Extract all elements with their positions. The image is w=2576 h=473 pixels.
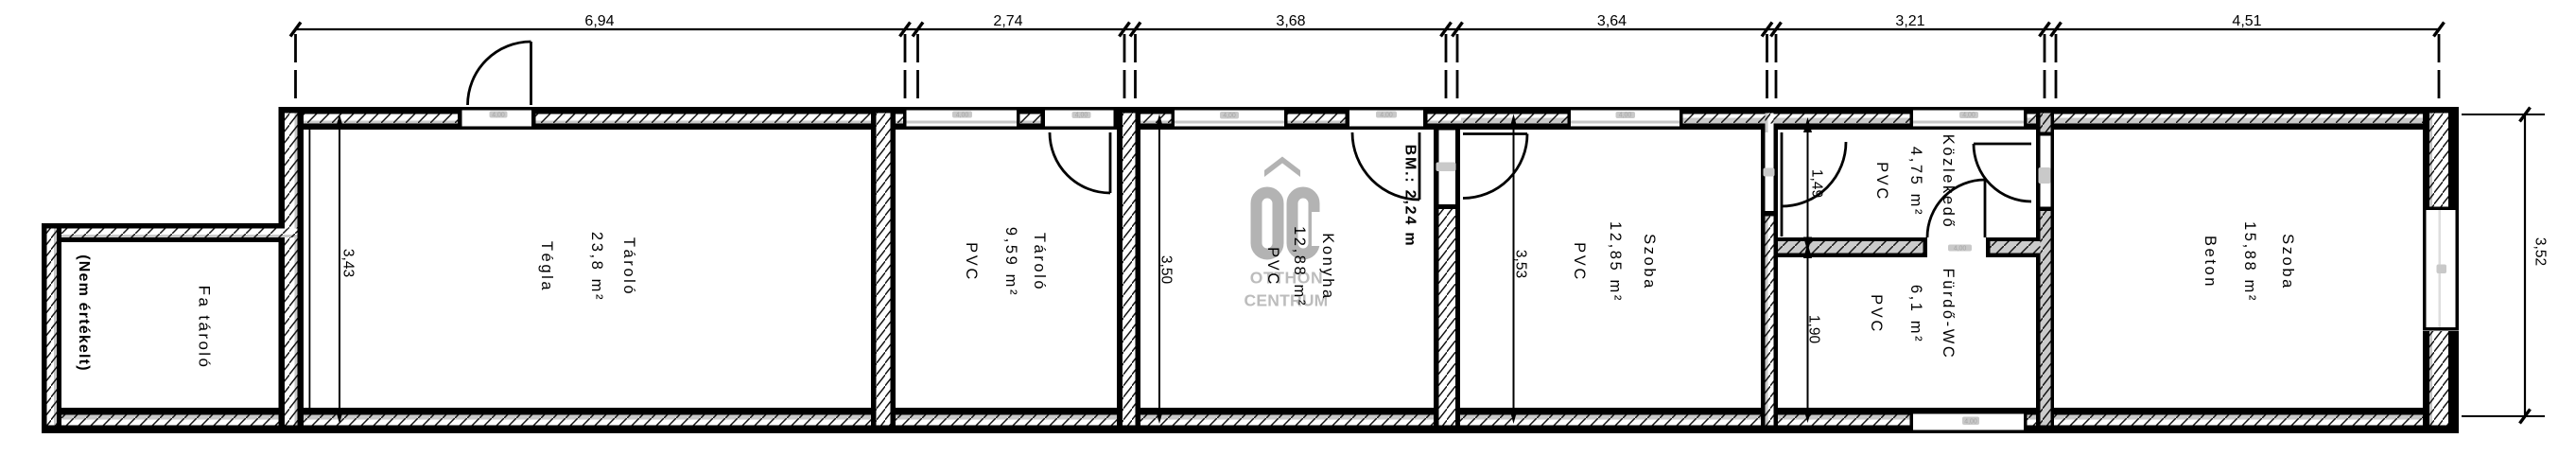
svg-text:4,00: 4,00 — [1619, 113, 1632, 119]
svg-text:Fürdő-WC: Fürdő-WC — [1940, 269, 1957, 360]
svg-text:1,49: 1,49 — [1809, 169, 1825, 198]
svg-text:4,75 m²: 4,75 m² — [1907, 147, 1924, 217]
svg-text:15,88 m²: 15,88 m² — [2241, 221, 2258, 303]
svg-text:PVC: PVC — [1571, 242, 1588, 282]
svg-text:3,53: 3,53 — [1513, 250, 1529, 278]
svg-text:3,68: 3,68 — [1276, 13, 1305, 29]
svg-text:OTTHON: OTTHON — [1250, 269, 1323, 288]
svg-text:(Nem értékelt): (Nem értékelt) — [76, 254, 92, 372]
svg-text:4,00: 4,00 — [1962, 113, 1976, 119]
svg-text:3,50: 3,50 — [1158, 255, 1175, 285]
svg-text:4,51: 4,51 — [2232, 13, 2261, 29]
svg-text:PVC: PVC — [1264, 247, 1281, 287]
svg-text:9,59 m²: 9,59 m² — [1002, 227, 1019, 297]
svg-text:1,90: 1,90 — [1806, 315, 1822, 344]
svg-text:6,1 m²: 6,1 m² — [1907, 285, 1924, 343]
svg-text:4,00: 4,00 — [1964, 419, 1977, 426]
svg-text:4,00: 4,00 — [1223, 113, 1236, 119]
svg-text:Fa tároló: Fa tároló — [196, 286, 214, 370]
svg-text:12,85 m²: 12,85 m² — [1607, 221, 1624, 303]
svg-text:4,00: 4,00 — [1380, 113, 1393, 119]
svg-text:4,00: 4,00 — [1954, 246, 1967, 253]
svg-text:3,52: 3,52 — [2532, 237, 2549, 266]
svg-text:PVC: PVC — [1873, 162, 1890, 201]
svg-text:3,64: 3,64 — [1597, 13, 1627, 29]
svg-text:3,21: 3,21 — [1895, 13, 1924, 29]
svg-text:Tároló: Tároló — [620, 237, 637, 296]
svg-text:4,00: 4,00 — [492, 113, 505, 119]
svg-text:2,74: 2,74 — [993, 13, 1022, 29]
svg-text:PVC: PVC — [1868, 294, 1885, 334]
svg-text:4,00: 4,00 — [956, 113, 969, 119]
svg-text:Közlekedő: Közlekedő — [1940, 134, 1957, 229]
svg-text:PVC: PVC — [963, 242, 980, 282]
svg-text:Szoba: Szoba — [1641, 234, 1658, 290]
svg-text:3,43: 3,43 — [340, 249, 357, 277]
svg-text:Tároló: Tároló — [1031, 233, 1048, 291]
svg-text:Tégla: Tégla — [538, 241, 555, 292]
svg-text:12,88 m²: 12,88 m² — [1291, 226, 1308, 307]
svg-text:6,94: 6,94 — [584, 13, 614, 29]
svg-text:Szoba: Szoba — [2279, 234, 2296, 290]
svg-text:Beton: Beton — [2202, 236, 2219, 289]
svg-text:BM.: 2,24 m: BM.: 2,24 m — [1402, 145, 1419, 248]
svg-text:4,00: 4,00 — [1075, 113, 1088, 119]
svg-text:CENTRUM: CENTRUM — [1244, 291, 1329, 310]
svg-text:23,8 m²: 23,8 m² — [588, 232, 605, 302]
svg-text:Konyha: Konyha — [1319, 233, 1336, 301]
